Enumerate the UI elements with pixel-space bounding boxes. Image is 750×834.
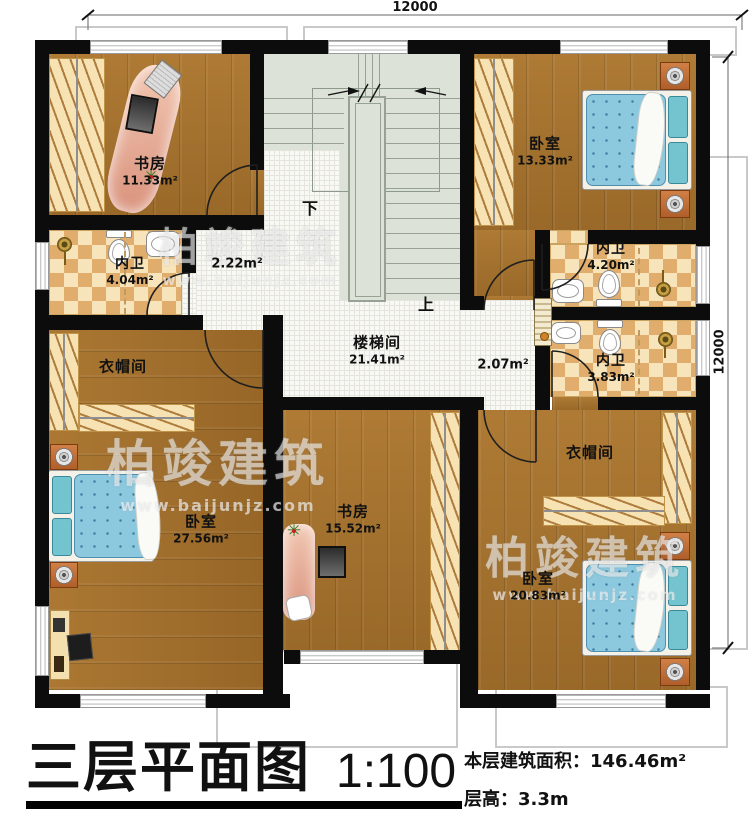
room-label-bath-r: 内卫 3.83m² — [587, 350, 634, 384]
room-label-cloak-r: 衣帽间 — [566, 442, 614, 463]
room-name: 内卫 — [587, 238, 634, 258]
room-name: 书房 — [325, 501, 381, 522]
room-label-bath-l: 内卫 4.04m² — [106, 253, 153, 287]
door-arc — [205, 330, 263, 388]
hall-area-label: 2.22m² — [211, 257, 262, 272]
dimension-value-right: 12000 — [713, 329, 728, 374]
door-arc — [207, 165, 257, 215]
floor-area-text: 本层建筑面积：146.46m² — [464, 752, 686, 772]
floor-height-text: 层高：3.3m — [464, 790, 569, 810]
room-name: 衣帽间 — [566, 442, 614, 463]
room-area: 2.07m² — [477, 358, 528, 373]
room-area: 3.83m² — [587, 370, 634, 384]
stair-up-label: 上 — [418, 291, 434, 315]
stair-arrow-icon — [348, 87, 360, 95]
stair-break-slash — [358, 84, 368, 102]
room-label-bedroom-bl: 卧室 27.56m² — [173, 511, 229, 546]
stair-down-label: 下 — [302, 195, 318, 219]
room-label-study-bm: 书房 15.52m² — [325, 501, 381, 536]
room-label-bedroom-br: 卧室 20.83m² — [510, 568, 566, 603]
stair-break-line — [328, 91, 348, 95]
room-name: 楼梯间 — [349, 332, 405, 353]
room-area: 15.52m² — [325, 522, 381, 536]
plan-title: 三层平面图 — [26, 740, 311, 795]
doors-and-dimensions-layer — [0, 0, 750, 834]
room-label-bedroom-tr: 卧室 13.33m² — [517, 133, 573, 168]
room-area: 11.33m² — [122, 174, 178, 188]
room-name: 内卫 — [587, 350, 634, 370]
room-label-stairwell: 楼梯间 21.41m² — [349, 332, 405, 367]
room-name: 内卫 — [106, 253, 153, 273]
room-area: 13.33m² — [517, 154, 573, 168]
stair-arrow-icon — [414, 87, 426, 95]
room-label-study-tl: 书房 11.33m² — [122, 153, 178, 188]
room-area: 4.04m² — [106, 273, 153, 287]
room-area: 27.56m² — [173, 532, 229, 546]
stair-break-line — [426, 91, 446, 95]
room-name: 卧室 — [173, 511, 229, 532]
door-arc — [484, 410, 536, 462]
plan-scale: 1:100 — [336, 748, 456, 796]
room-name: 衣帽间 — [99, 356, 147, 377]
room-name: 卧室 — [510, 568, 566, 589]
room-area: 4.20m² — [587, 258, 634, 272]
room-area: 21.41m² — [349, 353, 405, 367]
dimension-value-top: 12000 — [392, 0, 437, 15]
stair-break-slash — [370, 84, 380, 102]
room-label-bath-tr: 内卫 4.20m² — [587, 238, 634, 272]
room-name: 卧室 — [517, 133, 573, 154]
room-name: 书房 — [122, 153, 178, 174]
room-area: 2.22m² — [211, 257, 262, 272]
floor-plan-page: 柏竣建筑 www.baijunjz.com 柏竣建筑 www.baijunjz.… — [0, 0, 750, 834]
room-area: 20.83m² — [510, 589, 566, 603]
title-underline — [26, 801, 462, 809]
room-label-cloak-l: 衣帽间 — [99, 356, 147, 377]
door-arc — [484, 260, 534, 310]
hall-area-label: 2.07m² — [477, 358, 528, 373]
door-arc — [542, 244, 588, 290]
